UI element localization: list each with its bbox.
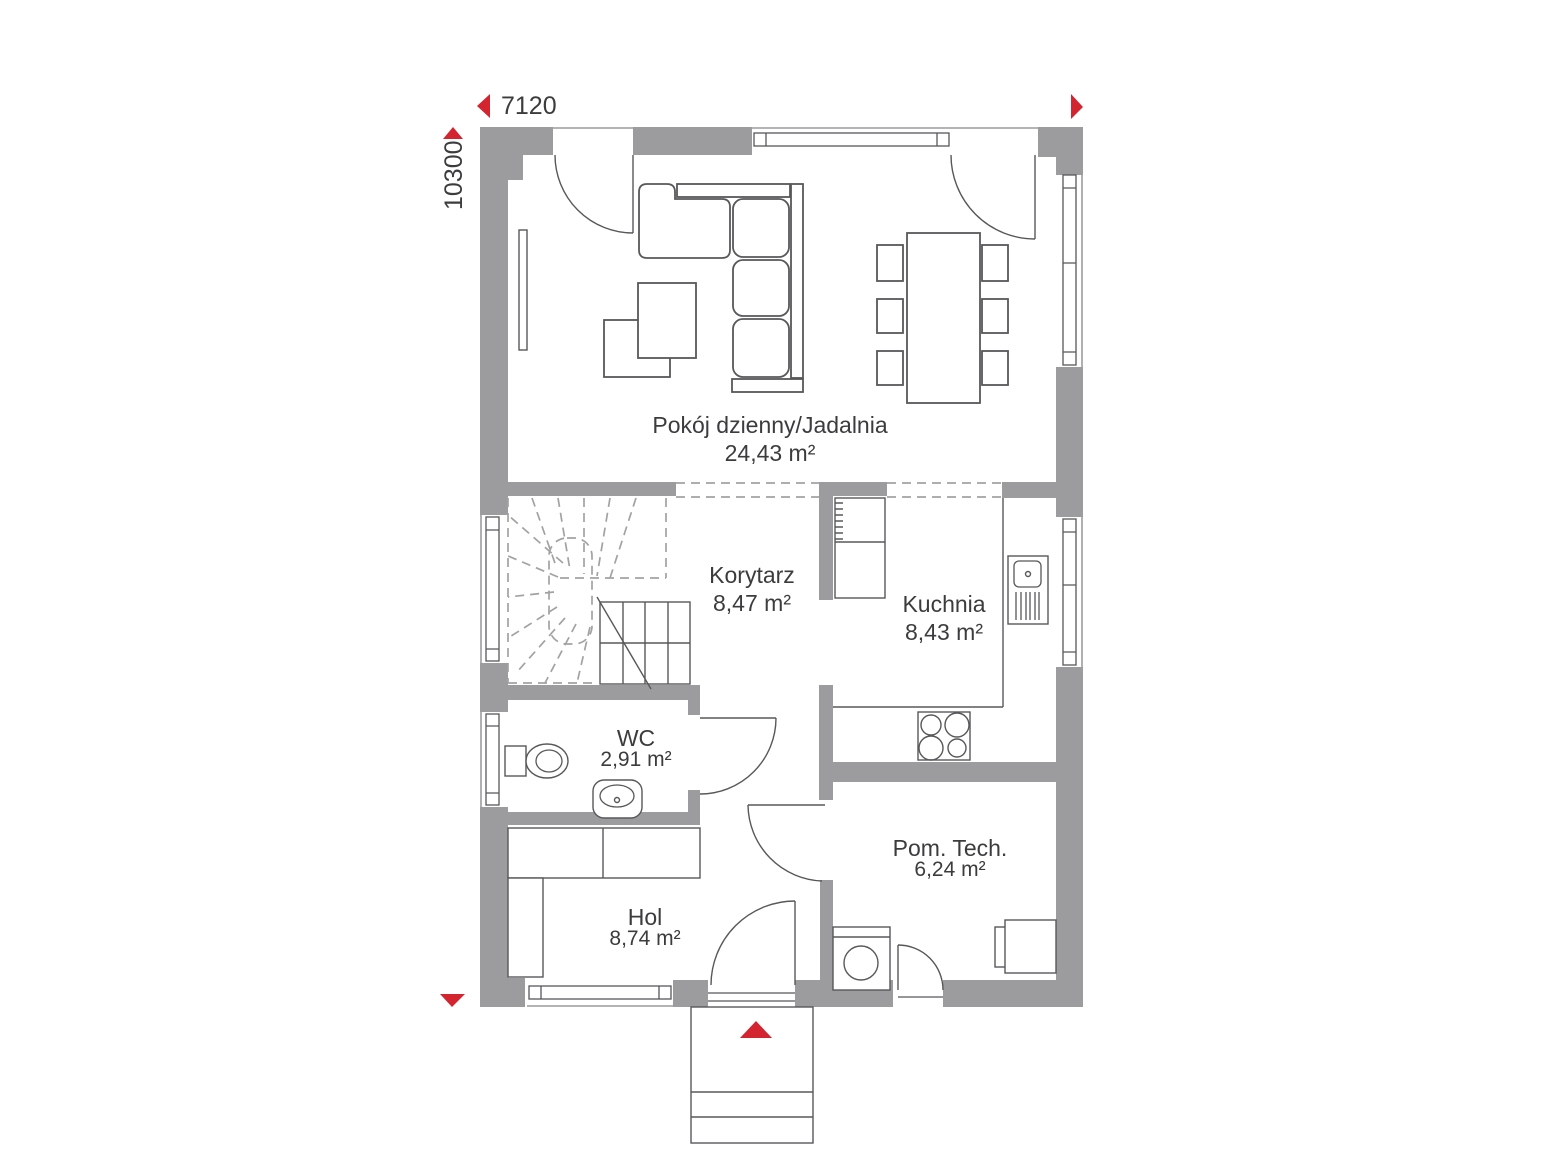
room-area-corridor: 8,47 m² <box>713 590 791 616</box>
room-label-corridor: Korytarz <box>709 562 795 588</box>
fridge <box>835 498 885 598</box>
wall-divider-low <box>820 880 833 980</box>
room-area-hall: 8,74 m² <box>609 927 680 950</box>
sofa-cushion <box>733 199 789 257</box>
floor-plan-page: 7120 10300 Pokój dzienny/Jadalnia 24,43 … <box>0 0 1556 1167</box>
dimension-height-label: 10300 <box>440 140 468 210</box>
wall-bottom-1 <box>673 980 708 1007</box>
coffee-table <box>638 283 696 358</box>
wall-top-mid <box>633 127 752 155</box>
dimension-width-label: 7120 <box>501 92 557 120</box>
wall-right-lower <box>1056 667 1083 1007</box>
wall-wc-right-stub <box>688 700 700 715</box>
kitchen-sink <box>1008 556 1048 624</box>
room-label-kitchen: Kuchnia <box>902 591 985 617</box>
sofa-cushion <box>733 319 789 377</box>
window-left-wc <box>486 714 499 805</box>
room-label-living: Pokój dzienny/Jadalnia <box>652 412 887 438</box>
window-left-stairs <box>486 517 499 661</box>
room-area-kitchen: 8,43 m² <box>905 619 983 645</box>
chair <box>877 351 903 385</box>
wall-divider-mid <box>819 685 833 800</box>
window-top-living <box>754 133 949 146</box>
floor-plan: 7120 10300 Pokój dzienny/Jadalnia 24,43 … <box>0 0 1556 1167</box>
wall-left-upper <box>480 127 508 515</box>
wall-corner-bottom-left <box>480 978 525 1007</box>
sofa-back-top <box>677 184 790 197</box>
chair <box>877 299 903 333</box>
dining-set <box>877 233 1008 403</box>
room-area-wc: 2,91 m² <box>600 748 671 771</box>
sofa-back-right <box>791 184 803 378</box>
wall-right-mid <box>1056 367 1083 517</box>
chair <box>982 299 1008 333</box>
room-area-tech: 6,24 m² <box>914 858 985 881</box>
chair <box>982 351 1008 385</box>
wall-kitchen-stub <box>1002 482 1056 498</box>
chair <box>877 245 903 281</box>
washing-machine-icon <box>833 927 890 990</box>
wall-left-mid <box>480 663 508 712</box>
wall-left-lower <box>480 807 508 978</box>
washbasin-icon <box>593 780 642 818</box>
wall-kitchen-bottom <box>833 762 1056 782</box>
window-bottom-hall <box>529 986 671 999</box>
sofa-armrest <box>732 379 803 392</box>
wall-corner-top-left-notch <box>508 155 523 180</box>
wall-stairs-top <box>508 482 676 496</box>
window-right-kitchen <box>1063 519 1076 665</box>
dining-table <box>907 233 980 403</box>
wall-corner-top-left <box>480 127 553 155</box>
radiator <box>519 230 527 350</box>
stove <box>918 712 970 760</box>
wall-wc-top <box>508 685 700 700</box>
boiler-icon <box>995 920 1056 973</box>
window-right-living <box>1063 175 1076 365</box>
wall-bottom-3 <box>943 980 1083 1007</box>
wall-divider-upper <box>819 482 833 600</box>
toilet-icon <box>505 744 568 778</box>
sofa-cushion <box>733 260 789 316</box>
room-area-living: 24,43 m² <box>725 440 816 466</box>
chair <box>982 245 1008 281</box>
